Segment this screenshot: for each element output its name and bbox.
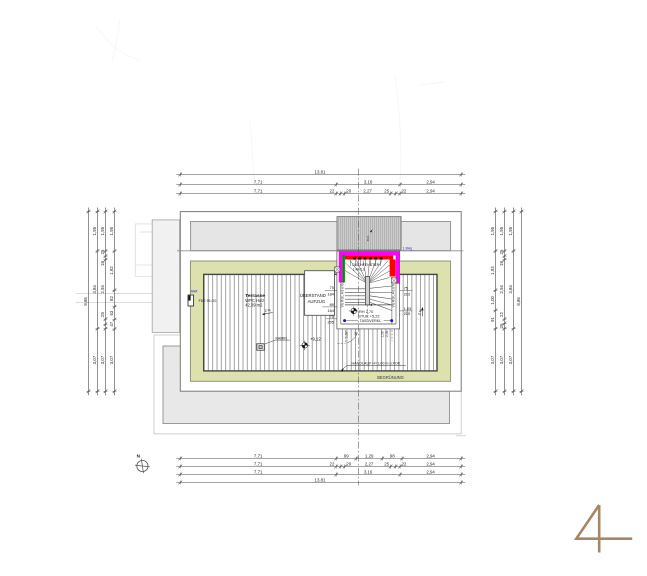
svg-text:3,16: 3,16 [364, 179, 373, 184]
svg-text:25: 25 [499, 323, 504, 328]
svg-text:7,71: 7,71 [254, 188, 263, 193]
svg-text:1.RAg: 1.RAg [403, 247, 412, 251]
svg-text:ÜBERSTAND: ÜBERSTAND [300, 293, 326, 298]
svg-text:1,95: 1,95 [499, 226, 504, 235]
svg-text:RAR: RAR [191, 289, 199, 293]
svg-text:2,94: 2,94 [100, 285, 105, 294]
svg-text:75: 75 [404, 286, 408, 290]
svg-text:42,39 m2: 42,39 m2 [245, 303, 263, 308]
svg-text:3,07: 3,07 [499, 355, 504, 364]
svg-text:13,81: 13,81 [315, 169, 327, 174]
svg-text:3,07: 3,07 [490, 355, 495, 364]
svg-text:HANDLAUF H=1,00 m ü.FOK: HANDLAUF H=1,00 m ü.FOK [352, 362, 401, 366]
svg-text:3,84: 3,84 [92, 285, 97, 294]
svg-text:3,16: 3,16 [364, 469, 373, 474]
svg-text:1,95: 1,95 [100, 226, 105, 235]
svg-text:99: 99 [344, 453, 349, 458]
svg-text:1,95: 1,95 [92, 226, 97, 235]
svg-text:2,94: 2,94 [426, 453, 435, 458]
svg-text:2,94: 2,94 [426, 188, 435, 193]
svg-text:2,94: 2,94 [426, 179, 435, 184]
svg-text:8,86: 8,86 [83, 297, 88, 306]
svg-text:1,95: 1,95 [490, 226, 495, 235]
svg-text:22: 22 [401, 461, 406, 466]
svg-text:205: 205 [328, 321, 334, 325]
svg-text:184: 184 [328, 293, 334, 297]
svg-text:1,93: 1,93 [490, 266, 495, 275]
svg-text:1,29: 1,29 [365, 453, 374, 458]
svg-text:3,07: 3,07 [109, 355, 114, 364]
svg-text:89: 89 [330, 303, 334, 307]
svg-text:2,27: 2,27 [363, 188, 372, 193]
svg-text:22: 22 [330, 188, 335, 193]
svg-text:75: 75 [330, 286, 334, 290]
svg-text:82: 82 [109, 296, 114, 301]
svg-text:VERGLASUNG: VERGLASUNG [341, 281, 345, 308]
svg-text:18: 18 [499, 261, 504, 266]
svg-text:20: 20 [346, 461, 351, 466]
svg-text:3,07: 3,07 [100, 355, 105, 364]
svg-text:25: 25 [100, 312, 105, 317]
svg-text:63: 63 [109, 310, 114, 315]
svg-text:TASDVERKL: TASDVERKL [360, 319, 382, 323]
svg-text:25: 25 [384, 461, 389, 466]
svg-text:AUFZUG: AUFZUG [308, 299, 326, 304]
svg-text:2,05: 2,05 [385, 330, 389, 337]
svg-text:213: 213 [404, 292, 410, 296]
svg-text:22: 22 [330, 461, 335, 466]
svg-text:2,94: 2,94 [426, 461, 435, 466]
svg-text:18: 18 [100, 261, 105, 266]
svg-text:2,27: 2,27 [365, 461, 374, 466]
svg-text:3,07: 3,07 [508, 355, 513, 364]
svg-text:215: 215 [404, 312, 410, 316]
svg-text:8,86: 8,86 [516, 297, 521, 306]
svg-text:+9,12: +9,12 [310, 336, 321, 341]
svg-text:47: 47 [109, 321, 114, 326]
svg-text:1,95: 1,95 [109, 226, 114, 235]
svg-text:25: 25 [499, 249, 504, 254]
svg-text:25: 25 [384, 188, 389, 193]
svg-text:7,71: 7,71 [254, 469, 263, 474]
svg-text:2,94: 2,94 [426, 469, 435, 474]
svg-text:1,03: 1,03 [404, 307, 411, 311]
svg-text:1,95: 1,95 [508, 226, 513, 235]
svg-text:2,94: 2,94 [499, 285, 504, 294]
svg-text:22: 22 [499, 312, 504, 317]
svg-text:1,00: 1,00 [490, 295, 495, 304]
svg-text:FDE 55 /20: FDE 55 /20 [199, 299, 217, 303]
svg-text:20: 20 [346, 188, 351, 193]
svg-text:184: 184 [328, 309, 334, 313]
svg-text:7,71: 7,71 [254, 179, 263, 184]
svg-text:3,07: 3,07 [92, 355, 97, 364]
svg-text:1,40/2,0: 1,40/2,0 [353, 267, 365, 271]
svg-text:98: 98 [390, 453, 395, 458]
svg-text:13,81: 13,81 [315, 477, 327, 482]
svg-text:22: 22 [401, 188, 406, 193]
svg-text:3,84: 3,84 [508, 285, 513, 294]
svg-text:STUK +5,22: STUK +5,22 [358, 313, 379, 318]
svg-text:1,92: 1,92 [109, 266, 114, 275]
svg-text:7,71: 7,71 [254, 461, 263, 466]
svg-text:91: 91 [490, 317, 495, 322]
svg-text:25: 25 [100, 249, 105, 254]
svg-text:TRF: TRF [366, 235, 370, 241]
svg-text:1,38: 1,38 [380, 331, 384, 338]
svg-text:7,71: 7,71 [254, 453, 263, 458]
svg-text:BEGRÜNUNG: BEGRÜNUNG [377, 375, 404, 380]
svg-text:VERGLASUNG: VERGLASUNG [392, 281, 396, 308]
